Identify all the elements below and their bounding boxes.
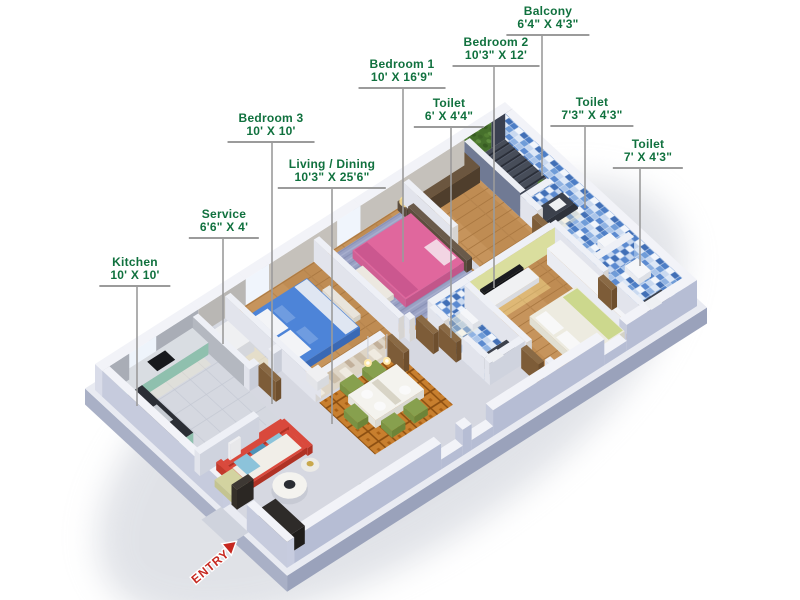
floor-plan-render: ENTRY	[0, 0, 800, 600]
floor-plan-page: ENTRY Kitchen10' X 10'Service6'6" X 4'Be…	[0, 0, 800, 600]
